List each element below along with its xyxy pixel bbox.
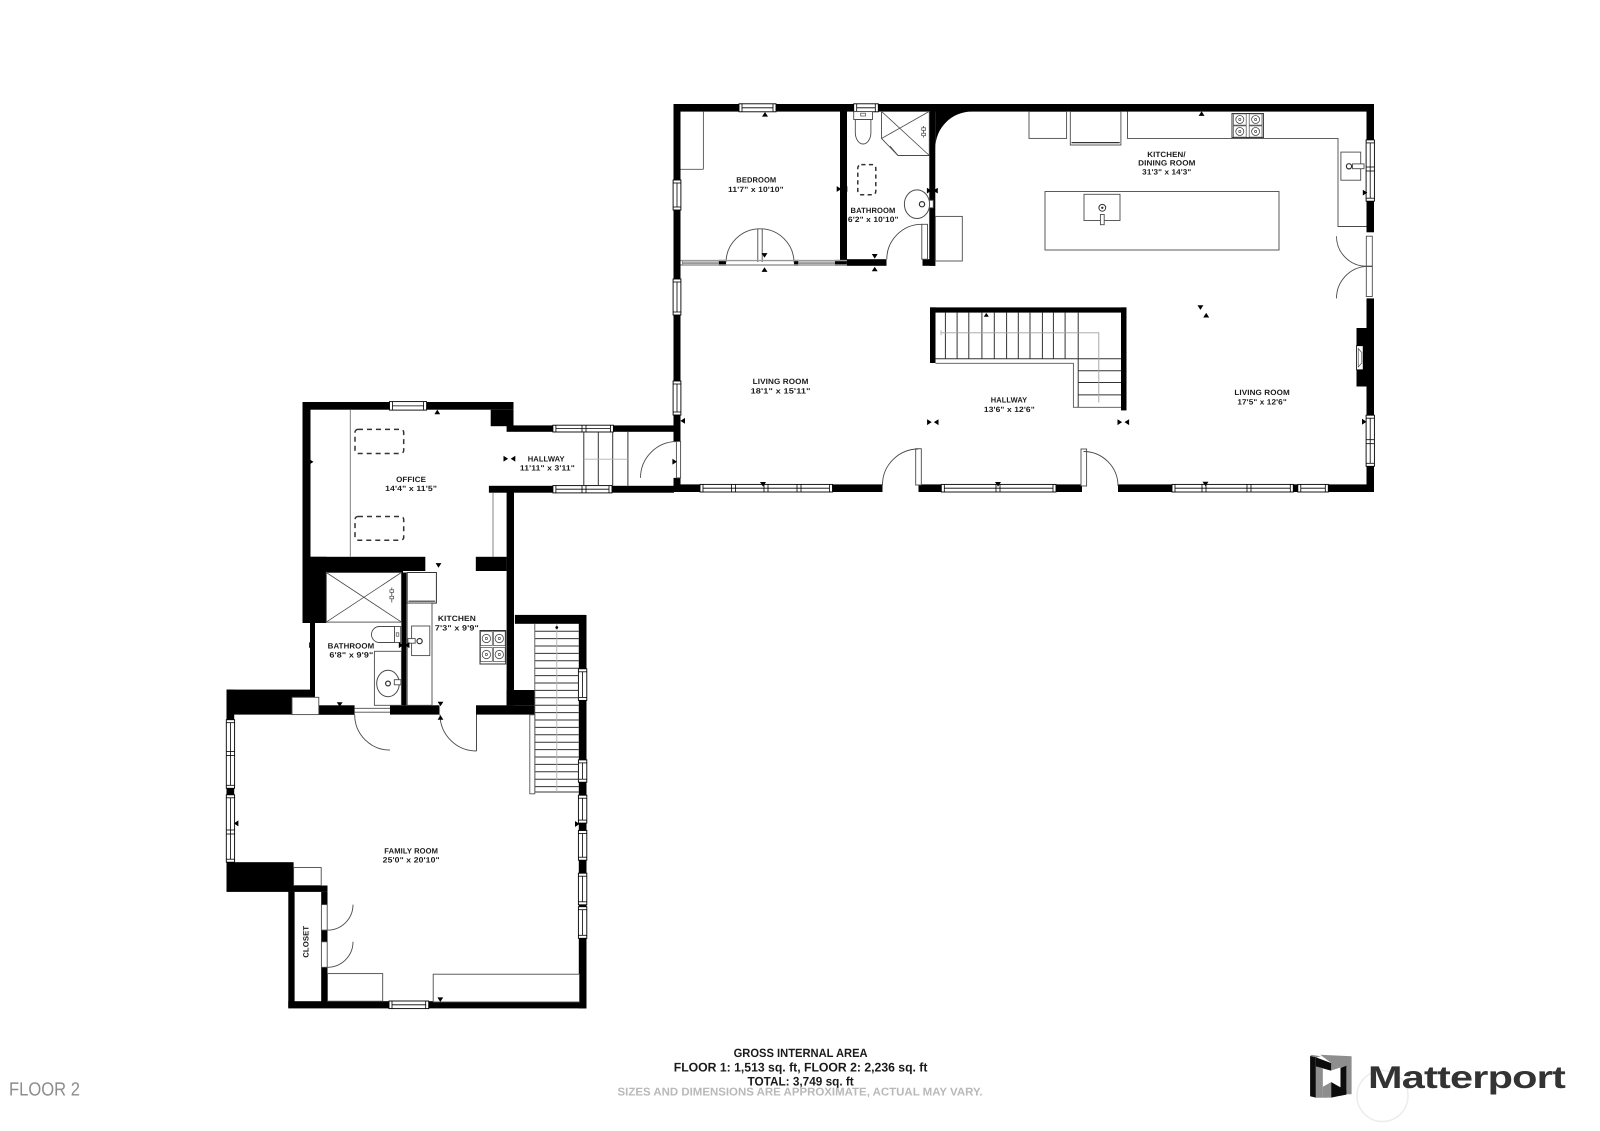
svg-text:FLOOR 2: FLOOR 2: [9, 1080, 80, 1101]
svg-text:HALLWAY: HALLWAY: [991, 396, 1028, 405]
svg-text:14'4" x 11'5": 14'4" x 11'5": [385, 484, 437, 493]
svg-text:LIVING ROOM: LIVING ROOM: [1234, 388, 1290, 397]
svg-text:18'1" x 15'11": 18'1" x 15'11": [751, 386, 811, 395]
svg-text:LIVING ROOM: LIVING ROOM: [753, 377, 809, 386]
svg-text:BATHROOM: BATHROOM: [851, 206, 896, 215]
svg-text:BATHROOM: BATHROOM: [328, 641, 375, 650]
svg-text:11'11" x 3'11": 11'11" x 3'11": [520, 464, 575, 473]
svg-text:KITCHEN: KITCHEN: [438, 614, 476, 623]
svg-text:OFFICE: OFFICE: [396, 475, 426, 484]
svg-text:31'3" x 14'3": 31'3" x 14'3": [1142, 168, 1191, 177]
svg-text:Matterport: Matterport: [1368, 1059, 1566, 1095]
svg-text:13'6" x 12'6": 13'6" x 12'6": [984, 405, 1035, 414]
svg-text:25'0" x 20'10": 25'0" x 20'10": [383, 856, 440, 865]
svg-text:FAMILY ROOM: FAMILY ROOM: [384, 846, 438, 855]
svg-text:6'8" x 9'9": 6'8" x 9'9": [329, 651, 373, 660]
svg-text:BEDROOM: BEDROOM: [736, 176, 776, 185]
svg-text:HALLWAY: HALLWAY: [528, 455, 565, 464]
svg-text:GROSS INTERNAL AREA: GROSS INTERNAL AREA: [734, 1046, 868, 1060]
svg-text:6'2" x 10'10": 6'2" x 10'10": [848, 215, 899, 224]
svg-text:KITCHEN/: KITCHEN/: [1147, 150, 1186, 159]
svg-text:17'5" x 12'6": 17'5" x 12'6": [1237, 397, 1287, 406]
svg-text:FLOOR 1: 1,513 sq. ft, FLOOR 2: FLOOR 1: 1,513 sq. ft, FLOOR 2: 2,236 sq…: [674, 1061, 928, 1075]
svg-text:7'3" x 9'9": 7'3" x 9'9": [435, 623, 479, 632]
svg-text:SIZES AND DIMENSIONS ARE APPRO: SIZES AND DIMENSIONS ARE APPROXIMATE, AC…: [618, 1086, 983, 1098]
svg-text:CLOSET: CLOSET: [301, 926, 310, 958]
svg-text:DINING ROOM: DINING ROOM: [1138, 159, 1195, 168]
svg-text:11'7" x 10'10": 11'7" x 10'10": [728, 185, 784, 194]
